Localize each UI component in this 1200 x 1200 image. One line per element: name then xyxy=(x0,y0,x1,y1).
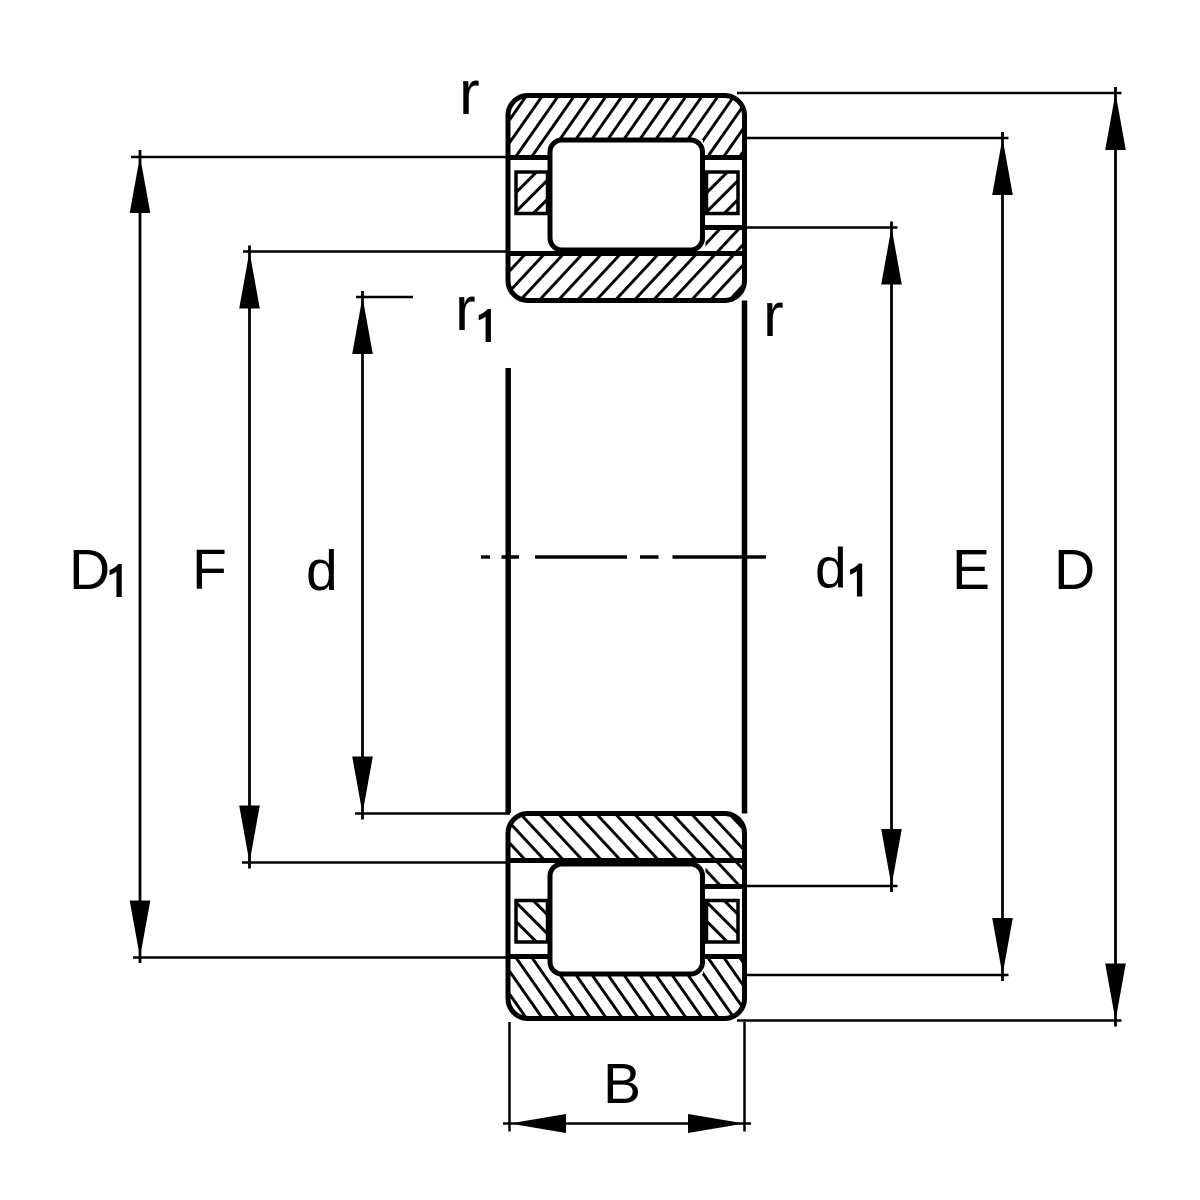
svg-text:d: d xyxy=(815,537,847,601)
svg-text:B: B xyxy=(603,1052,641,1116)
svg-text:d: d xyxy=(306,539,338,603)
svg-text:D: D xyxy=(1054,538,1095,602)
svg-text:r: r xyxy=(763,281,784,350)
svg-text:E: E xyxy=(952,538,990,602)
svg-text:F: F xyxy=(192,538,227,602)
svg-text:D: D xyxy=(69,538,110,602)
svg-text:r: r xyxy=(459,59,480,128)
svg-text:r: r xyxy=(455,275,476,344)
